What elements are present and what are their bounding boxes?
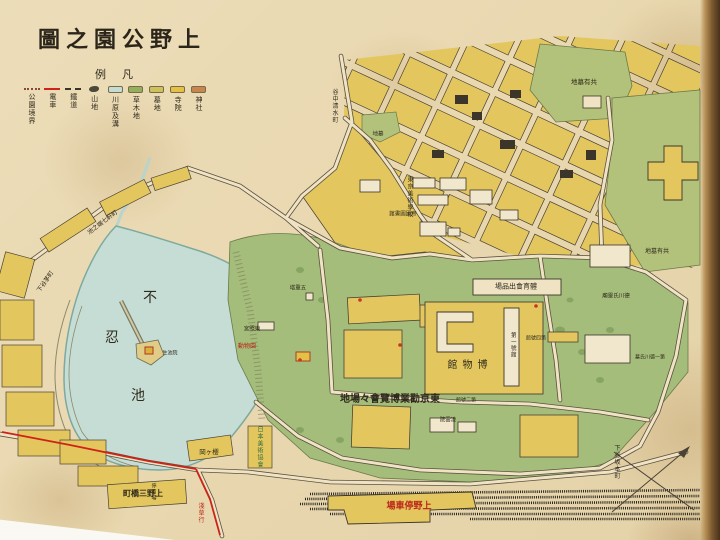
- legend-swatch-8: [191, 86, 206, 93]
- kiyomizu-hall: [296, 352, 310, 361]
- legend-item-3: 山地: [85, 86, 104, 128]
- legend-item-5: 草木地: [126, 86, 145, 128]
- legend-label-6: 墓地: [153, 96, 160, 112]
- map-title: 圖之園公野上: [38, 22, 206, 54]
- legend-label-7: 寺院: [174, 96, 181, 112]
- legend-swatch-1: [44, 88, 60, 90]
- legend-swatch-6: [149, 86, 164, 93]
- museum-grounds: [425, 302, 543, 394]
- legend-item-8: 神社: [189, 86, 208, 128]
- legend-label-0: 公園境界: [28, 93, 35, 125]
- title-block: 圖之園公野上: [38, 22, 206, 54]
- legend-swatch-4: [108, 86, 123, 93]
- legend-label-1: 電車: [49, 93, 56, 109]
- station-building: [328, 492, 476, 524]
- legend-item-0: 公園境界: [22, 86, 41, 128]
- legend-label-3: 山地: [91, 95, 98, 111]
- legend-swatch-5: [128, 86, 143, 93]
- sports-exhibit-hall: [473, 279, 561, 295]
- legend-items: 公園境界電車鐵道山地川原及溝草木地墓地寺院神社: [22, 86, 208, 128]
- legend-item-2: 鐵道: [64, 86, 83, 128]
- legend-swatch-7: [170, 86, 185, 93]
- legend-swatch-0: [24, 88, 40, 90]
- legend-swatch-3: [89, 86, 99, 92]
- legend-item-6: 墓地: [147, 86, 166, 128]
- book-edge: [700, 0, 720, 540]
- legend-swatch-2: [65, 88, 81, 90]
- legend-label-8: 神社: [195, 96, 202, 112]
- legend-label-5: 草木地: [132, 96, 139, 120]
- legend-header: 例凡: [36, 66, 208, 82]
- map-page: 不忍池生池院動物園宮照東塔重五東京美術學校館書圖國帝場品出會育體館物博第一號館館…: [0, 0, 720, 540]
- legend-item-7: 寺院: [168, 86, 187, 128]
- legend-item-1: 電車: [43, 86, 62, 128]
- legend-label-4: 川原及溝: [112, 96, 119, 128]
- legend: 例凡 公園境界電車鐵道山地川原及溝草木地墓地寺院神社: [22, 66, 208, 128]
- legend-label-2: 鐵道: [70, 93, 77, 109]
- legend-item-4: 川原及溝: [106, 86, 125, 128]
